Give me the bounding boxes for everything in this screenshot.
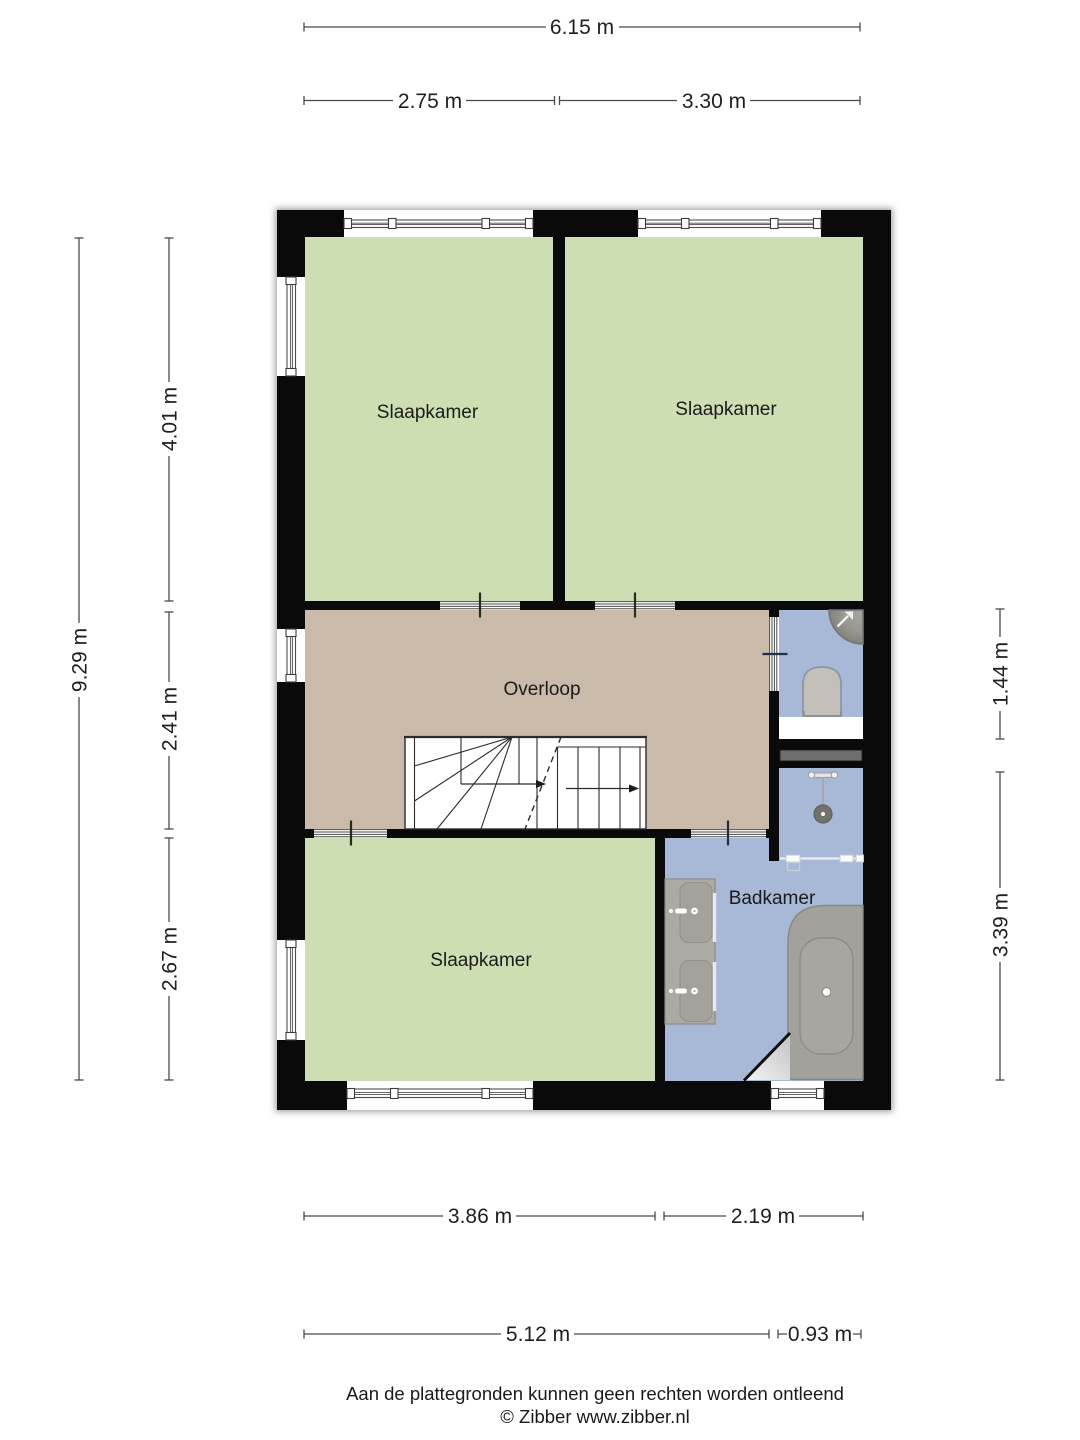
svg-text:Slaapkamer: Slaapkamer: [430, 950, 532, 971]
svg-text:Slaapkamer: Slaapkamer: [377, 402, 479, 423]
svg-text:2.67 m: 2.67 m: [159, 927, 182, 991]
svg-text:5.12 m: 5.12 m: [506, 1323, 570, 1346]
svg-text:Overloop: Overloop: [503, 679, 580, 700]
svg-text:3.39 m: 3.39 m: [990, 893, 1013, 957]
svg-text:2.19 m: 2.19 m: [731, 1205, 795, 1228]
svg-text:3.30 m: 3.30 m: [682, 90, 746, 113]
svg-text:Aan de plattegronden kunnen ge: Aan de plattegronden kunnen geen rechten…: [346, 1383, 844, 1404]
svg-text:4.01 m: 4.01 m: [159, 387, 182, 451]
svg-text:6.15 m: 6.15 m: [550, 16, 614, 39]
svg-text:Slaapkamer: Slaapkamer: [675, 399, 777, 420]
svg-text:© Zibber www.zibber.nl: © Zibber www.zibber.nl: [500, 1406, 689, 1427]
svg-text:Badkamer: Badkamer: [729, 888, 816, 909]
svg-text:0.93 m: 0.93 m: [788, 1323, 852, 1346]
svg-text:1.44 m: 1.44 m: [990, 642, 1013, 706]
svg-text:2.75 m: 2.75 m: [398, 90, 462, 113]
svg-text:2.41 m: 2.41 m: [159, 687, 182, 751]
svg-text:9.29 m: 9.29 m: [69, 628, 92, 692]
svg-text:3.86 m: 3.86 m: [448, 1205, 512, 1228]
